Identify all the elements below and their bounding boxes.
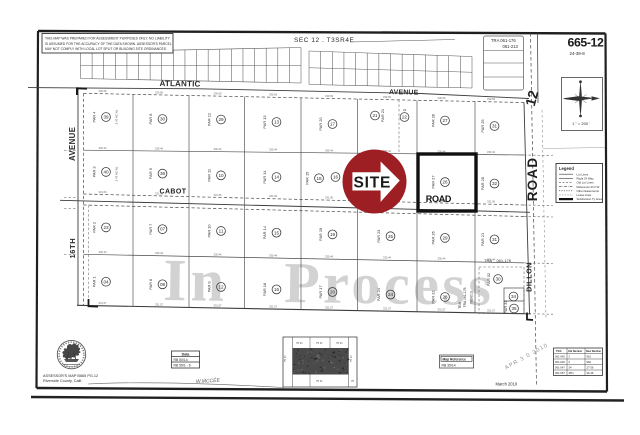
svg-text:PAR 27: PAR 27: [431, 176, 436, 189]
svg-text:24-39-8: 24-39-8: [570, 51, 586, 56]
svg-text:TRA 061-176: TRA 061-176: [463, 287, 467, 307]
svg-text:330.44: 330.44: [383, 256, 391, 260]
svg-text:330.69: 330.69: [155, 90, 163, 94]
svg-text:18: 18: [316, 176, 322, 181]
svg-text:PAR 21: PAR 21: [380, 109, 385, 122]
svg-text:PAR 14: PAR 14: [262, 170, 267, 184]
svg-text:PAR 1: PAR 1: [92, 276, 97, 287]
svg-text:TRA 061-176: TRA 061-176: [484, 258, 512, 263]
svg-text:14: 14: [274, 175, 280, 180]
svg-text:PAR 31: PAR 31: [503, 300, 508, 313]
svg-text:Legend: Legend: [559, 166, 574, 171]
svg-text:15: 15: [274, 230, 280, 235]
svg-text:331.57: 331.57: [99, 301, 107, 305]
svg-text:19: 19: [330, 232, 336, 237]
svg-text:PAR 14: PAR 14: [262, 225, 267, 239]
svg-text:Riverside County, Calif.: Riverside County, Calif.: [43, 379, 82, 383]
svg-text:27-36: 27-36: [587, 366, 594, 370]
svg-text:330.44: 330.44: [438, 257, 446, 261]
svg-text:07: 07: [160, 227, 166, 232]
svg-text:330.69: 330.69: [99, 89, 107, 93]
svg-text:36: 36: [160, 171, 166, 176]
svg-text:TRA: TRA: [556, 349, 562, 353]
svg-text:16: 16: [333, 175, 339, 180]
svg-text:061-045: 061-045: [555, 355, 565, 359]
svg-text:PAR 26: PAR 26: [431, 114, 436, 127]
svg-text:New Number: New Number: [586, 350, 601, 353]
svg-text:34: 34: [569, 366, 572, 370]
svg-text:March 2010: March 2010: [496, 382, 518, 387]
svg-text:962: 962: [587, 360, 592, 364]
svg-text:75 Ft: 75 Ft: [336, 341, 343, 345]
svg-text:ROAD: ROAD: [525, 157, 540, 202]
svg-text:23: 23: [103, 225, 109, 230]
svg-text:24: 24: [388, 292, 394, 297]
svg-text:665-12: 665-12: [568, 36, 604, 50]
svg-text:17: 17: [330, 122, 336, 127]
svg-text:Old Number: Old Number: [568, 350, 582, 353]
svg-text:40: 40: [103, 169, 109, 174]
svg-text:26: 26: [442, 180, 448, 185]
svg-text:TRA: TRA: [458, 301, 462, 309]
svg-text:PAR 9: PAR 9: [207, 281, 212, 292]
svg-text:331.06: 331.06: [155, 191, 163, 195]
svg-text:32: 32: [492, 181, 498, 186]
svg-text:331.57: 331.57: [438, 308, 446, 312]
svg-text:75 Ft: 75 Ft: [316, 341, 323, 345]
svg-text:RB 59/1 - 6: RB 59/1 - 6: [174, 363, 191, 367]
svg-text:08: 08: [160, 282, 166, 287]
svg-text:31: 31: [492, 237, 498, 242]
svg-text:PAR 12: PAR 12: [207, 113, 212, 126]
svg-text:331.06: 331.06: [269, 194, 277, 198]
svg-text:ATLANTIC: ATLANTIC: [159, 79, 200, 89]
svg-text:331.57: 331.57: [214, 303, 222, 307]
svg-text:330.44: 330.44: [325, 254, 333, 258]
svg-text:RB 39/14: RB 39/14: [442, 364, 456, 368]
svg-text:331.06: 331.06: [487, 200, 495, 204]
svg-text:24: 24: [403, 108, 407, 112]
svg-text:RB 50/14: RB 50/14: [174, 358, 188, 362]
svg-text:30: 30: [160, 117, 166, 122]
svg-text:061-213: 061-213: [503, 44, 519, 49]
svg-text:331.57: 331.57: [155, 302, 163, 306]
svg-text:330.44: 330.44: [155, 251, 163, 255]
svg-text:PAR 13: PAR 13: [262, 115, 267, 128]
svg-text:28: 28: [442, 295, 448, 300]
svg-text:330.44: 330.44: [99, 146, 107, 150]
svg-text:Data: Data: [182, 353, 191, 357]
svg-text:20: 20: [330, 290, 336, 295]
svg-text:AVENUE: AVENUE: [389, 89, 419, 97]
svg-text:061-057: 061-057: [555, 371, 565, 375]
svg-text:PAR 8: PAR 8: [148, 114, 153, 125]
svg-text:75 Ft: 75 Ft: [283, 355, 287, 362]
svg-text:75 Ft: 75 Ft: [349, 355, 353, 362]
svg-text:THIS MAP WAS PREPARED FOR ASSE: THIS MAP WAS PREPARED FOR ASSESSMENT PUR…: [45, 37, 171, 41]
svg-text:PAR 24: PAR 24: [376, 287, 381, 301]
svg-text:75 Ft: 75 Ft: [316, 379, 323, 383]
svg-text:39: 39: [103, 115, 109, 120]
svg-text:330.69: 330.69: [269, 93, 277, 97]
svg-text:PAR 26: PAR 26: [431, 231, 436, 244]
svg-text:29: 29: [218, 117, 224, 122]
svg-text:061-046: 061-046: [555, 360, 565, 364]
svg-text:38½: 38½: [569, 371, 575, 375]
svg-text:330.69: 330.69: [438, 96, 446, 100]
svg-text:330.69: 330.69: [383, 95, 391, 99]
svg-text:330.44: 330.44: [325, 148, 333, 152]
svg-text:IS ASSUMED FOR THE ACCURACY OF: IS ASSUMED FOR THE ACCURACY OF THE DATA …: [45, 42, 172, 46]
svg-text:PAR 16: PAR 16: [262, 283, 267, 296]
svg-text:75 Ft: 75 Ft: [296, 341, 303, 345]
svg-text:35: 35: [511, 306, 517, 311]
svg-text:PAR 25: PAR 25: [480, 119, 485, 132]
svg-text:12: 12: [218, 285, 224, 290]
svg-text:PAR 6: PAR 6: [148, 279, 153, 290]
svg-text:22: 22: [402, 115, 408, 120]
svg-text:PAR 11: PAR 11: [207, 169, 212, 182]
svg-text:331.57: 331.57: [383, 307, 391, 311]
svg-text:PAR 19: PAR 19: [318, 228, 323, 241]
svg-text:330.44: 330.44: [487, 150, 495, 154]
svg-text:SEC 12 . T3SR4E: SEC 12 . T3SR4E: [294, 37, 354, 44]
svg-text:330.44: 330.44: [269, 253, 277, 257]
svg-text:331.06: 331.06: [99, 190, 107, 194]
svg-text:PAR 2: PAR 2: [92, 222, 97, 233]
svg-text:21: 21: [372, 113, 378, 118]
svg-text:331.06: 331.06: [325, 196, 333, 200]
svg-text:16TH: 16TH: [68, 238, 77, 259]
svg-text:PAR 3: PAR 3: [92, 166, 97, 177]
svg-text:25: 25: [388, 234, 394, 239]
svg-text:PAR 7: PAR 7: [148, 224, 153, 235]
svg-text:CABOT: CABOT: [160, 189, 187, 196]
svg-text:10: 10: [218, 173, 224, 178]
svg-text:PAR 23: PAR 23: [376, 230, 381, 243]
svg-text:061-213: 061-213: [470, 291, 474, 304]
svg-text:PAR 21: PAR 21: [480, 233, 485, 246]
svg-text:13: 13: [274, 120, 280, 125]
svg-text:MAY NOT COMPLY WITH LOCAL LOT: MAY NOT COMPLY WITH LOCAL LOT SPLIT OR B…: [45, 47, 167, 51]
svg-text:31: 31: [492, 124, 498, 129]
svg-text:Map Reference: Map Reference: [443, 357, 467, 361]
svg-text:2.47 AC NL: 2.47 AC NL: [115, 166, 119, 181]
svg-text:PAR 28: PAR 28: [480, 177, 485, 190]
svg-text:330.44: 330.44: [269, 148, 277, 152]
svg-text:30: 30: [495, 277, 501, 282]
svg-text:330.69: 330.69: [487, 97, 495, 101]
svg-text:TRA 061-176: TRA 061-176: [491, 38, 516, 43]
svg-text:1 " = 200 ': 1 " = 200 ': [572, 121, 590, 126]
svg-text:PAR 5: PAR 5: [148, 168, 153, 179]
svg-text:061-047: 061-047: [555, 366, 565, 370]
svg-text:961: 961: [587, 355, 592, 359]
svg-text:ROAD: ROAD: [426, 194, 452, 204]
svg-text:2.47 AC NL: 2.47 AC NL: [115, 109, 119, 124]
svg-text:29: 29: [442, 236, 448, 241]
svg-text:16: 16: [274, 287, 280, 292]
svg-text:330.69: 330.69: [214, 92, 222, 96]
svg-text:SITE: SITE: [354, 175, 392, 192]
svg-text:34: 34: [511, 294, 517, 299]
svg-text:330.44: 330.44: [99, 250, 107, 254]
svg-text:PAR 20: PAR 20: [318, 117, 323, 131]
svg-text:331.57: 331.57: [325, 305, 333, 309]
svg-text:75: 75: [351, 379, 355, 383]
svg-text:331.57: 331.57: [487, 309, 495, 313]
svg-text:331.06: 331.06: [214, 193, 222, 197]
svg-text:330.44: 330.44: [214, 252, 222, 256]
svg-text:330.44: 330.44: [155, 146, 163, 150]
svg-text:PAR 15: PAR 15: [305, 172, 310, 185]
svg-text:PAR 17: PAR 17: [318, 285, 323, 298]
svg-text:PAR 10: PAR 10: [207, 224, 212, 238]
svg-text:Subdivision Ty Area: Subdivision Ty Area: [577, 197, 603, 201]
svg-text:330.69: 330.69: [325, 94, 333, 98]
svg-text:AVENUE: AVENUE: [68, 127, 77, 161]
svg-text:331.57: 331.57: [269, 304, 277, 308]
svg-text:PAR 22: PAR 22: [431, 290, 436, 303]
svg-text:DILLON: DILLON: [525, 262, 534, 292]
svg-text:27: 27: [442, 118, 448, 123]
svg-text:04: 04: [103, 279, 109, 284]
svg-text:11: 11: [219, 229, 224, 234]
svg-text:36-36: 36-36: [587, 371, 594, 375]
svg-text:ASSESSOR'S MAP B665 PG.12: ASSESSOR'S MAP B665 PG.12: [43, 374, 98, 378]
svg-text:PAR 4: PAR 4: [92, 111, 97, 123]
svg-text:330.44: 330.44: [214, 147, 222, 151]
svg-text:PAR 32: PAR 32: [486, 273, 491, 286]
